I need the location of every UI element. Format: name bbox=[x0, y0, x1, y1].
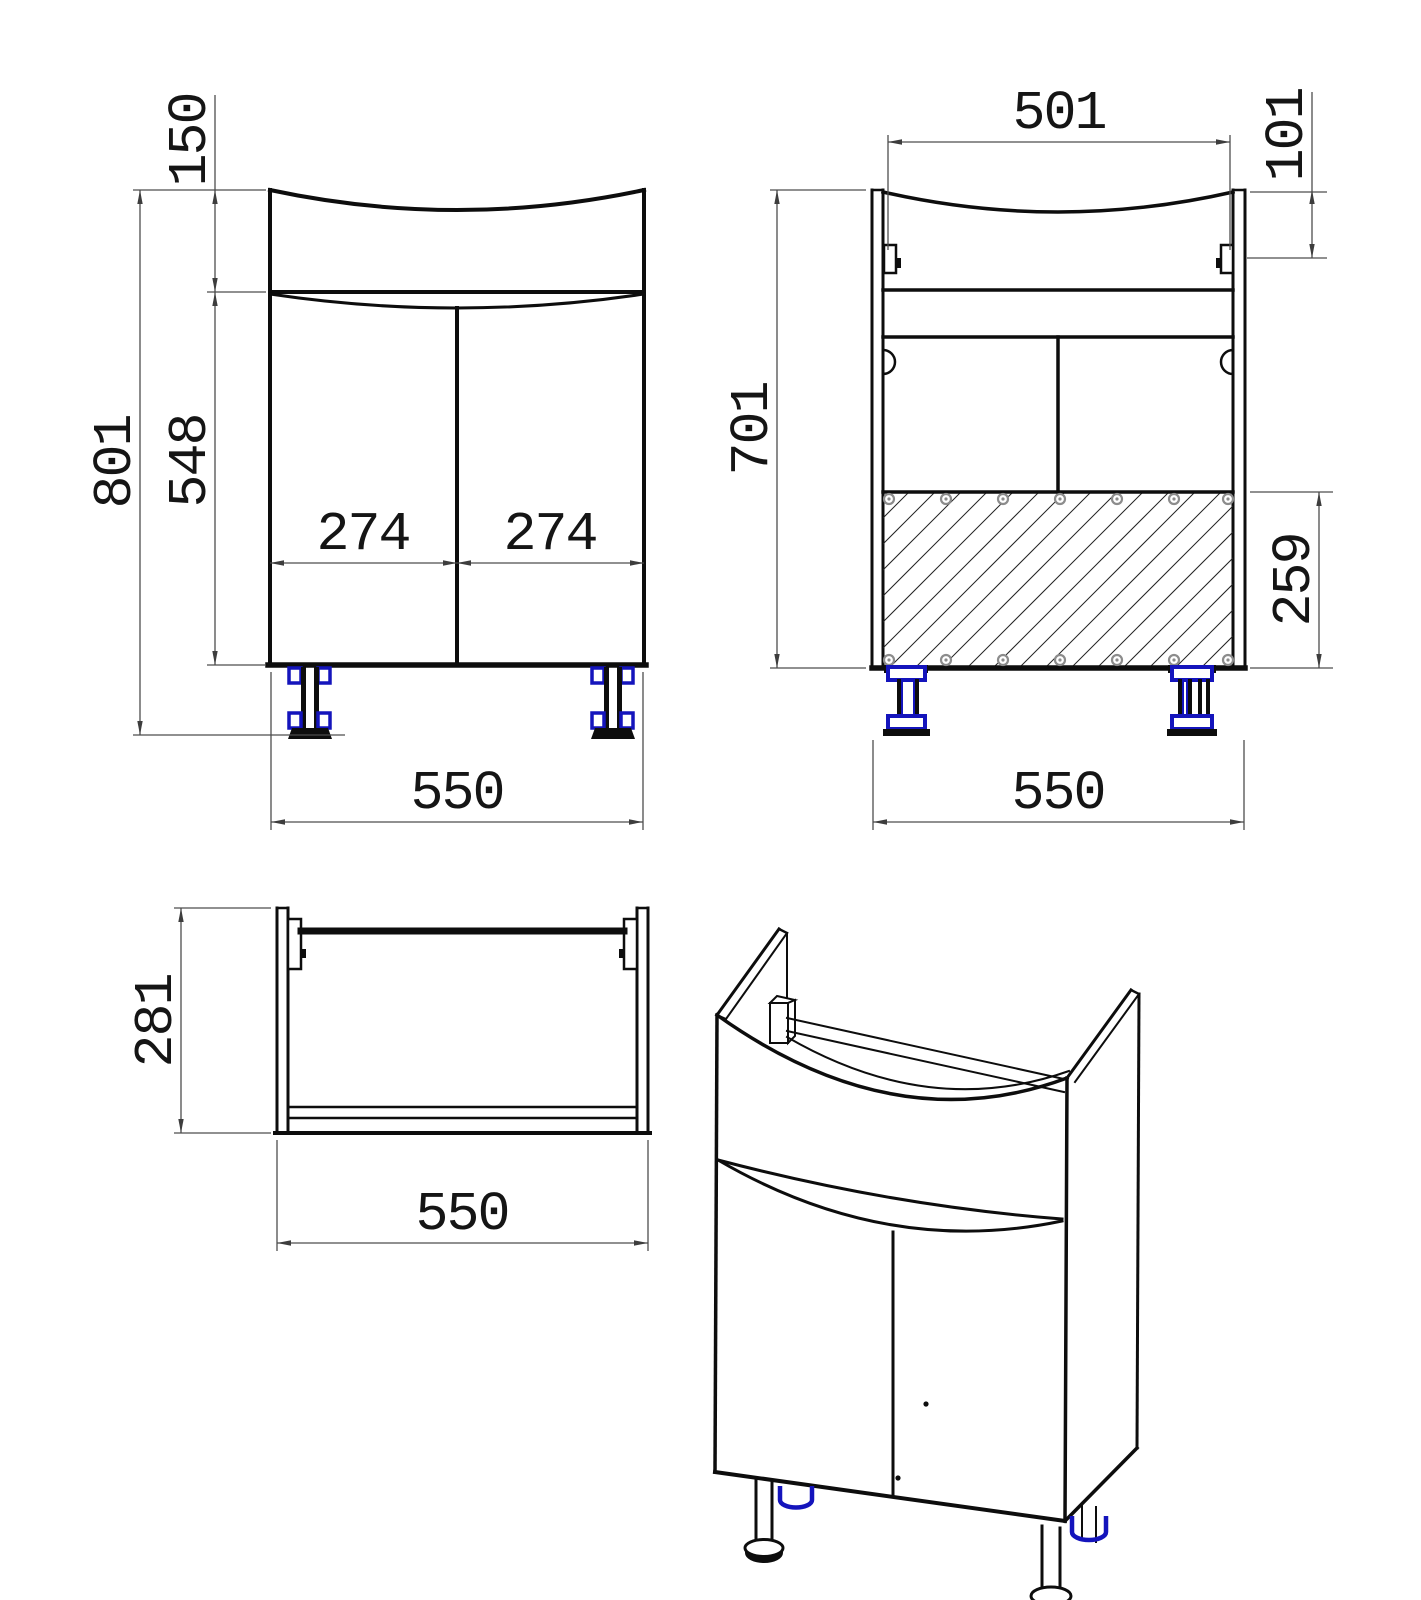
iso-back-rail bbox=[787, 1018, 1064, 1079]
hatch-line bbox=[915, 492, 1091, 668]
back-top-curved-edge bbox=[883, 192, 1233, 212]
back-left-leg bbox=[883, 665, 930, 736]
dim-top-depth: 281 bbox=[125, 974, 188, 1067]
front-right-leg bbox=[591, 667, 635, 739]
back-view: 501 101 701 259 550 bbox=[707, 82, 1403, 830]
isometric-view bbox=[715, 929, 1139, 1600]
iso-right-panel-front-edge bbox=[1065, 1078, 1067, 1521]
hatch-line bbox=[1045, 492, 1221, 668]
screw-icon bbox=[1112, 494, 1122, 504]
top-left-bracket bbox=[288, 919, 306, 969]
iso-left-panel-front-edge bbox=[715, 1015, 717, 1472]
iso-right-panel-back-edge bbox=[1137, 994, 1139, 1448]
iso-door-top-curve bbox=[718, 1160, 1062, 1219]
front-top-curved-edge bbox=[270, 190, 644, 210]
screw-icon bbox=[884, 494, 894, 504]
dim-front-overall-width: 550 bbox=[410, 762, 503, 825]
top-view: 281 550 bbox=[125, 908, 650, 1251]
screw-icon bbox=[1169, 494, 1179, 504]
iso-front-left-leg bbox=[745, 1480, 812, 1563]
screw-icon bbox=[941, 655, 951, 665]
screw-icon bbox=[1112, 655, 1122, 665]
iso-right-panel-bottom-edge bbox=[1065, 1448, 1137, 1521]
front-view: 150 801 548 274 274 550 bbox=[84, 93, 646, 830]
dim-back-bracket-offset: 101 bbox=[1256, 88, 1319, 181]
screw-icon bbox=[1055, 494, 1065, 504]
leg-foot bbox=[591, 728, 635, 739]
hatch-line bbox=[993, 492, 1169, 668]
iso-door-handle-hole bbox=[895, 1475, 900, 1480]
iso-door-handle-hole bbox=[923, 1401, 928, 1406]
back-dimensions: 501 101 701 259 550 bbox=[721, 82, 1333, 830]
dim-back-top-inner-width: 501 bbox=[1012, 82, 1105, 145]
top-dimensions: 281 550 bbox=[125, 908, 648, 1251]
back-right-leg bbox=[1167, 665, 1217, 736]
hatch-line bbox=[759, 492, 935, 668]
back-right-hinge-hole bbox=[1221, 350, 1233, 374]
hatch-line bbox=[1097, 492, 1273, 668]
hatch-line bbox=[941, 492, 1117, 668]
hatch-line bbox=[811, 492, 987, 668]
leg-foot bbox=[1167, 729, 1217, 736]
technical-drawing-page: 150 801 548 274 274 550 bbox=[0, 0, 1421, 1600]
front-left-leg bbox=[288, 667, 332, 739]
screw-icon bbox=[1223, 655, 1233, 665]
back-panel-screws bbox=[884, 494, 1233, 665]
iso-bottom-edge bbox=[715, 1472, 1065, 1521]
hatch-line bbox=[967, 492, 1143, 668]
dim-back-carcass-height: 701 bbox=[721, 382, 784, 475]
screw-icon bbox=[884, 655, 894, 665]
leg-foot bbox=[288, 728, 332, 739]
dim-front-door-section-height: 548 bbox=[159, 414, 222, 507]
leg-foot bbox=[883, 729, 930, 736]
dim-back-overall-width: 550 bbox=[1011, 762, 1104, 825]
hatch-line bbox=[1071, 492, 1247, 668]
hatch-line bbox=[1019, 492, 1195, 668]
dim-back-panel-height: 259 bbox=[1263, 533, 1326, 626]
dim-front-overall-height: 801 bbox=[84, 415, 147, 508]
hatch-line bbox=[707, 492, 883, 668]
top-right-bracket bbox=[619, 919, 637, 969]
screw-icon bbox=[998, 494, 1008, 504]
dim-front-right-door-width: 274 bbox=[503, 503, 596, 566]
dim-top-overall-width: 550 bbox=[415, 1183, 508, 1246]
screw-icon bbox=[1223, 494, 1233, 504]
screw-icon bbox=[1169, 655, 1179, 665]
screw-icon bbox=[1055, 655, 1065, 665]
front-door-top-curve bbox=[270, 294, 644, 308]
screw-icon bbox=[998, 655, 1008, 665]
dim-front-top-section-height: 150 bbox=[159, 93, 222, 186]
back-left-hinge-hole bbox=[883, 350, 895, 374]
hatch-line bbox=[889, 492, 1065, 668]
hatch-line bbox=[837, 492, 1013, 668]
screw-icon bbox=[941, 494, 951, 504]
back-left-bracket bbox=[884, 245, 901, 273]
vanity-cabinet-drawing: 150 801 548 274 274 550 bbox=[0, 0, 1421, 1600]
dim-front-left-door-width: 274 bbox=[316, 503, 409, 566]
hatch-line bbox=[863, 492, 1039, 668]
